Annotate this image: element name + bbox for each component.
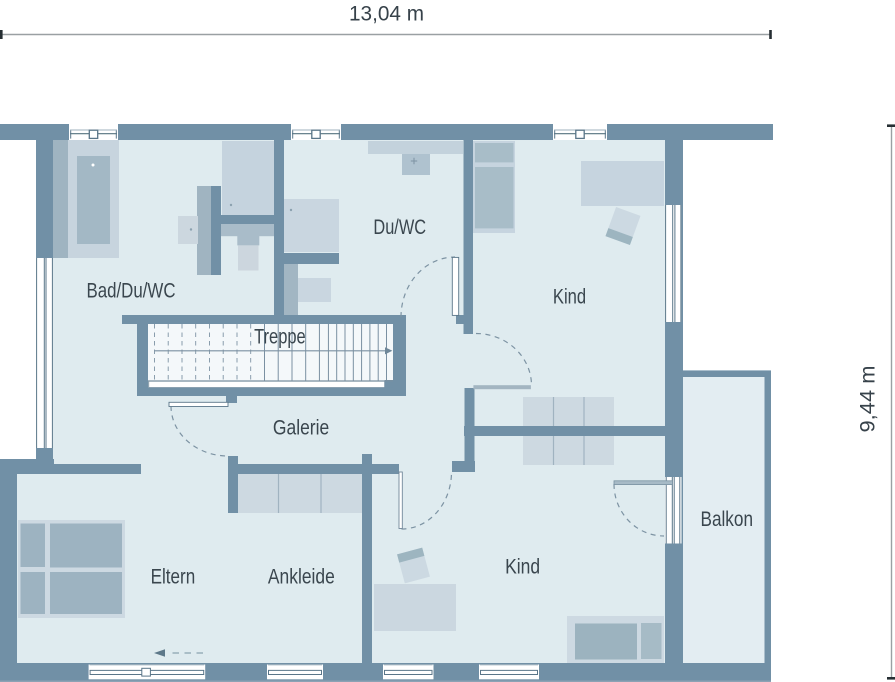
- svg-text:Kind: Kind: [553, 284, 586, 308]
- svg-text:Bad/Du/WC: Bad/Du/WC: [87, 279, 176, 303]
- svg-text:Kind: Kind: [505, 555, 540, 579]
- svg-text:9,44 m: 9,44 m: [856, 366, 880, 433]
- svg-text:Ankleide: Ankleide: [268, 564, 335, 588]
- svg-text:Galerie: Galerie: [273, 416, 329, 440]
- svg-text:Du/WC: Du/WC: [373, 215, 426, 239]
- svg-text:13,04 m: 13,04 m: [349, 2, 424, 26]
- svg-text:Eltern: Eltern: [151, 564, 196, 588]
- svg-text:Treppe: Treppe: [254, 324, 306, 348]
- svg-text:Balkon: Balkon: [701, 507, 754, 531]
